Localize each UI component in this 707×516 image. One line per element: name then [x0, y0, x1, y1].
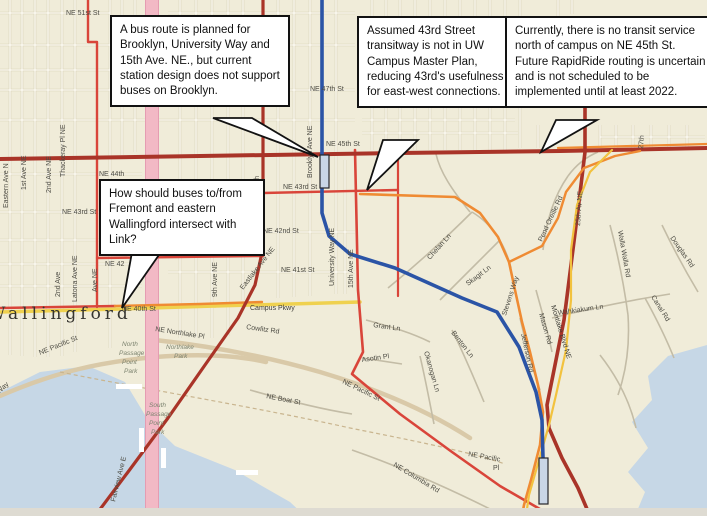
callout-fremont-question-text: How should buses to/from Fremont and eas…: [109, 188, 242, 246]
street-label: Northlake: [166, 344, 194, 351]
street-label: Park: [174, 353, 188, 360]
street-label: 2nd Ave: [55, 272, 62, 297]
street-label: Thackeray Pl NE: [60, 124, 67, 177]
callout-43rd-transitway: Assumed 43rd Street transitway is not in…: [357, 16, 519, 108]
link-station-marker: [539, 458, 548, 504]
callout-43rd-transitway-text: Assumed 43rd Street transitway is not in…: [367, 25, 503, 98]
street-label: 9th Ave NE: [212, 262, 219, 297]
street-label: 15th Ave NE: [348, 249, 355, 288]
street-label: Latona Ave NE: [72, 255, 79, 302]
street-label: Point: [122, 359, 138, 366]
street-label: NE 47th St: [310, 86, 344, 93]
street-label: 27th: [638, 135, 646, 149]
callout-rapidride: Currently, there is no transit service n…: [505, 16, 707, 108]
dock: [236, 470, 258, 475]
street-label: Passage: [119, 350, 145, 357]
map-page: NE 51st StNE 47th StNE 45th StNE 43rd St…: [0, 0, 707, 516]
street-label: Park: [151, 429, 165, 436]
dock: [161, 448, 166, 468]
street-label: Passage: [146, 411, 172, 418]
street-label: NE 43rd St: [62, 209, 96, 216]
street-label: Ave NE: [92, 268, 99, 292]
street-label: NE 41st St: [281, 267, 315, 274]
street-label: Eastern Ave N: [3, 163, 10, 208]
callout-station-design: A bus route is planned for Brooklyn, Uni…: [110, 15, 290, 107]
street-label: Park: [124, 368, 138, 375]
street-label: NE 42nd St: [263, 228, 299, 235]
street-label: NE 45th St: [326, 141, 360, 148]
neighborhood-label: Wallingford: [0, 304, 132, 324]
street-label: Point: [149, 420, 165, 427]
link-station-marker: [320, 155, 329, 188]
street-label: North: [122, 341, 138, 348]
callout-fremont-question: How should buses to/from Fremont and eas…: [99, 179, 265, 256]
street-label: 1st Ave NE: [21, 155, 28, 190]
street-label: NE 51st St: [66, 10, 100, 17]
street-label: 2nd Ave NE: [46, 156, 53, 193]
dock: [139, 428, 144, 452]
street-label: NE 44th: [99, 171, 124, 178]
callout-rapidride-text: Currently, there is no transit service n…: [515, 25, 706, 98]
street-label: University Way NE: [329, 228, 336, 286]
dock: [116, 384, 142, 389]
callout-station-design-text: A bus route is planned for Brooklyn, Uni…: [120, 24, 280, 97]
street-label: Pl: [493, 465, 500, 472]
street-label: NE 42: [105, 261, 125, 268]
street-label: South: [149, 402, 166, 409]
street-label: Campus Pkwy: [250, 305, 295, 312]
map-bottom-edge: [0, 508, 707, 516]
street-label: NE 43rd St: [283, 184, 317, 191]
